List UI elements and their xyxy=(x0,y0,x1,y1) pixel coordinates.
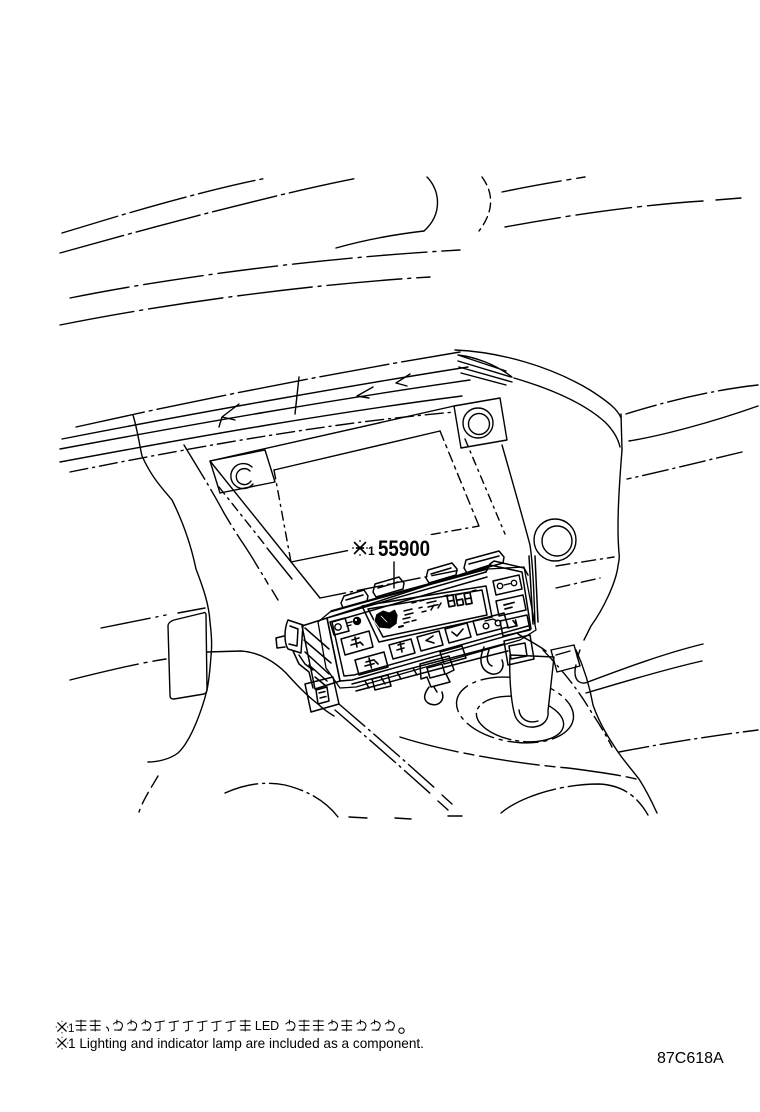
svg-text:87C618A: 87C618A xyxy=(657,1050,724,1067)
svg-text:LED: LED xyxy=(255,1019,279,1033)
svg-text:55900: 55900 xyxy=(378,536,430,561)
svg-text:1 Lighting and indicator lamp: 1 Lighting and indicator lamp are includ… xyxy=(68,1036,424,1051)
svg-text:1: 1 xyxy=(68,1023,74,1035)
svg-text:1: 1 xyxy=(368,544,375,558)
